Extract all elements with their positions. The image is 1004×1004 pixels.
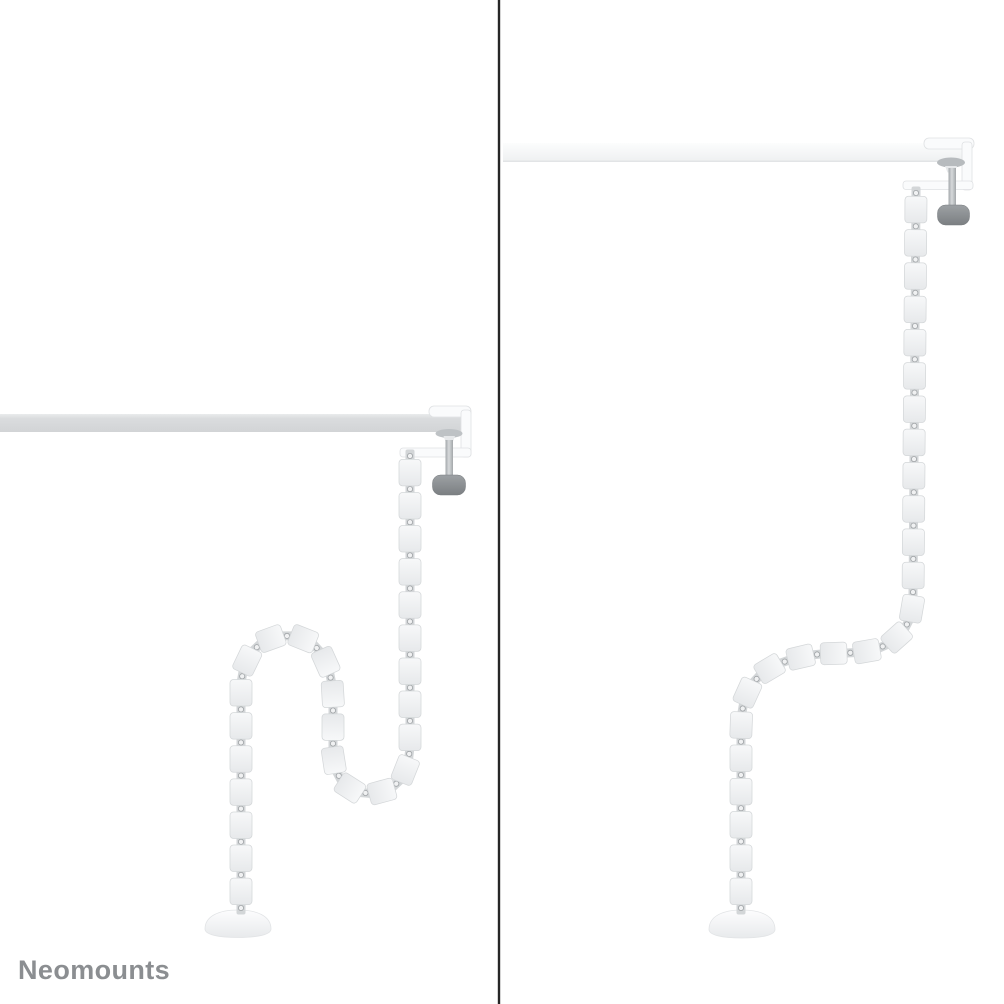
spine-segments [730,196,927,904]
spine-segment [904,263,926,290]
spine-segment [902,562,924,589]
spine-segment [903,496,925,523]
spine-segment [399,559,421,586]
spine-segment [899,594,925,624]
product-render [0,0,1004,1004]
spine-segments [230,459,421,904]
spine-segment [399,492,421,519]
desk-surface-right [503,143,965,162]
clamp-screw-knob [938,205,970,225]
spine-segment [904,329,926,356]
spine-segment [904,363,926,390]
spine-segment [399,658,421,685]
spine-segment [902,529,924,556]
spine-segment [322,714,344,741]
spine-segment [730,778,752,805]
spine-segment [905,230,927,257]
spine-segment [730,812,752,839]
spine-segment [399,526,421,553]
panel-divider [498,0,500,1004]
spine-segment [730,711,753,738]
clamp-screw-rod [949,168,957,208]
spine-segment [785,643,816,670]
cable-spine-left [230,450,421,915]
spine-segment [230,812,252,839]
spine-segment [730,878,752,905]
spine-segment [321,745,347,775]
brand-logo: Neomounts [18,956,170,986]
spine-segment [230,845,252,872]
spine-segment [903,462,925,489]
spine-segment [230,680,252,707]
panel-right [503,138,974,938]
spine-segment [905,196,927,223]
panel-left [0,406,471,938]
clamp-screw-rod [446,440,454,479]
clamp-screw-knob [433,475,466,495]
cable-spine-right [730,186,927,914]
spine-segment [903,396,925,423]
spine-segment [230,713,252,740]
spine-segment [366,777,397,805]
product-image: Neomounts [0,0,1004,1004]
spine-segment [730,845,752,872]
spine-segment [230,878,252,905]
spine-segment [903,429,925,456]
desk-surface-left [0,414,462,432]
spine-joints [736,186,920,914]
spine-segment [321,680,345,708]
spine-segment [230,779,252,806]
spine-segment [230,746,252,773]
spine-segment [399,625,421,652]
spine-segment [904,296,926,323]
spine-segment [399,459,421,486]
spine-segment [399,592,421,619]
spine-segment [820,642,847,665]
spine-segment [730,745,752,772]
spine-segment [852,638,882,664]
spine-segment [399,691,421,718]
spine-segment [399,724,421,751]
desk-edge-right [503,161,965,163]
